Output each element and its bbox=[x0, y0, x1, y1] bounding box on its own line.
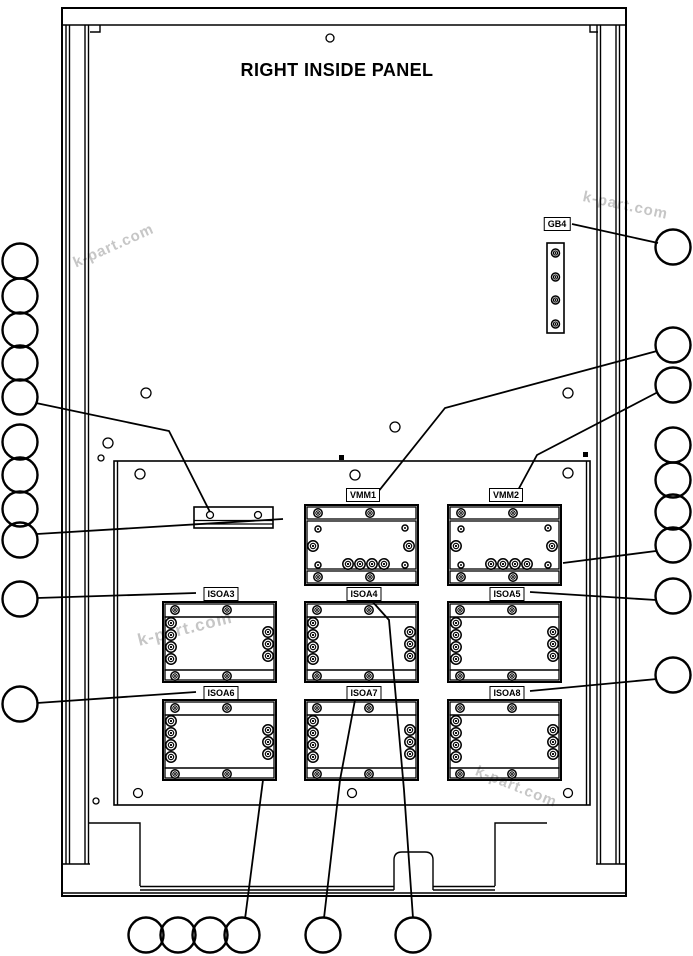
leader-line bbox=[37, 593, 196, 598]
screw-icon bbox=[404, 527, 406, 529]
module-vmm1 bbox=[305, 505, 418, 585]
screw-icon bbox=[368, 609, 370, 611]
component-label-vmm1: VMM1 bbox=[346, 488, 380, 502]
terminal-bar bbox=[194, 507, 273, 528]
module-section bbox=[450, 715, 559, 768]
module-isoa6 bbox=[163, 700, 276, 780]
leader-line bbox=[324, 700, 355, 918]
screw-icon bbox=[226, 773, 228, 775]
screw-icon bbox=[555, 252, 557, 254]
module-section bbox=[307, 507, 416, 519]
page-title: RIGHT INSIDE PANEL bbox=[241, 60, 434, 81]
mounting-hole bbox=[390, 422, 400, 432]
callout-balloon-right[interactable] bbox=[656, 368, 691, 403]
screw-icon bbox=[459, 609, 461, 611]
callout-balloon-right[interactable] bbox=[656, 463, 691, 498]
component-label-isoa5: ISOA5 bbox=[489, 587, 524, 601]
screw-icon bbox=[170, 634, 172, 636]
right-inside-panel-diagram: RIGHT INSIDE PANEL k-part.comk-part.comk… bbox=[0, 0, 693, 956]
module-isoa4 bbox=[305, 602, 418, 682]
screw-icon bbox=[409, 729, 411, 731]
screw-icon bbox=[383, 563, 385, 565]
screw-icon bbox=[555, 299, 557, 301]
gb4-terminal-strip bbox=[547, 243, 564, 333]
callout-balloon-bottom[interactable] bbox=[306, 918, 341, 953]
screw-icon bbox=[316, 707, 318, 709]
screw-icon bbox=[267, 643, 269, 645]
screw-icon bbox=[455, 646, 457, 648]
screw-icon bbox=[174, 773, 176, 775]
callout-balloon-bottom[interactable] bbox=[225, 918, 260, 953]
module-section bbox=[165, 604, 274, 617]
screw-icon bbox=[226, 609, 228, 611]
screw-icon bbox=[170, 720, 172, 722]
module-section bbox=[307, 604, 416, 617]
component-label-isoa3: ISOA3 bbox=[203, 587, 238, 601]
screw-icon bbox=[312, 720, 314, 722]
screw-icon bbox=[514, 563, 516, 565]
screw-icon bbox=[267, 753, 269, 755]
screw-icon bbox=[547, 527, 549, 529]
screw-icon bbox=[267, 741, 269, 743]
leader-line bbox=[378, 351, 657, 492]
module-section bbox=[307, 670, 416, 680]
callout-balloon-right[interactable] bbox=[656, 230, 691, 265]
screw-icon bbox=[460, 512, 462, 514]
screw-icon bbox=[551, 545, 553, 547]
module-section bbox=[450, 702, 559, 715]
screw-icon bbox=[409, 643, 411, 645]
screw-icon bbox=[502, 563, 504, 565]
screw-icon bbox=[555, 276, 557, 278]
callout-balloon-left[interactable] bbox=[3, 313, 38, 348]
leader-line bbox=[572, 224, 658, 243]
leader-line bbox=[530, 679, 657, 691]
screw-icon bbox=[460, 564, 462, 566]
screw-icon bbox=[312, 756, 314, 758]
screw-icon bbox=[455, 545, 457, 547]
screw-icon bbox=[459, 707, 461, 709]
callout-balloon-left[interactable] bbox=[3, 346, 38, 381]
screw-icon bbox=[267, 631, 269, 633]
component-label-isoa4: ISOA4 bbox=[346, 587, 381, 601]
screw-icon bbox=[511, 609, 513, 611]
callout-balloon-right[interactable] bbox=[656, 495, 691, 530]
screw-icon bbox=[312, 545, 314, 547]
component-label-vmm2: VMM2 bbox=[489, 488, 523, 502]
screw-icon bbox=[552, 741, 554, 743]
frame-step bbox=[495, 823, 547, 886]
screw-icon bbox=[371, 563, 373, 565]
callout-balloon-bottom[interactable] bbox=[161, 918, 196, 953]
screw-icon bbox=[512, 512, 514, 514]
screw-icon bbox=[226, 675, 228, 677]
module-section bbox=[307, 617, 416, 670]
tab-mark bbox=[583, 452, 588, 457]
tab-mark bbox=[339, 455, 344, 460]
screw-icon bbox=[312, 744, 314, 746]
screw-icon bbox=[316, 773, 318, 775]
callout-balloon-left[interactable] bbox=[3, 380, 38, 415]
module-outline bbox=[448, 505, 561, 585]
callout-balloon-bottom[interactable] bbox=[396, 918, 431, 953]
mounting-hole bbox=[103, 438, 113, 448]
screw-icon bbox=[312, 622, 314, 624]
screw-icon bbox=[312, 646, 314, 648]
screw-icon bbox=[455, 658, 457, 660]
screw-icon bbox=[455, 622, 457, 624]
module-isoa5 bbox=[448, 602, 561, 682]
frame-step bbox=[90, 25, 100, 32]
leader-line bbox=[517, 392, 658, 492]
module-section bbox=[450, 507, 559, 519]
callout-balloon-left[interactable] bbox=[3, 425, 38, 460]
module-section bbox=[165, 702, 274, 715]
screw-icon bbox=[317, 564, 319, 566]
leader-line bbox=[245, 780, 263, 919]
screw-icon bbox=[459, 675, 461, 677]
screw-icon bbox=[170, 744, 172, 746]
bottom-notch bbox=[394, 852, 433, 890]
screw-icon bbox=[267, 655, 269, 657]
callout-balloon-left[interactable] bbox=[3, 523, 38, 558]
screw-icon bbox=[455, 720, 457, 722]
screw-icon bbox=[409, 741, 411, 743]
screw-icon bbox=[511, 707, 513, 709]
callout-balloon-right[interactable] bbox=[656, 428, 691, 463]
module-section bbox=[165, 715, 274, 768]
component-label-isoa7: ISOA7 bbox=[346, 686, 381, 700]
panel-drawing bbox=[0, 0, 693, 956]
bar-hole bbox=[255, 512, 262, 519]
callout-balloon-left[interactable] bbox=[3, 582, 38, 617]
mounting-hole bbox=[326, 34, 334, 42]
screw-icon bbox=[460, 576, 462, 578]
screw-icon bbox=[347, 563, 349, 565]
screw-icon bbox=[170, 646, 172, 648]
screw-icon bbox=[490, 563, 492, 565]
callout-balloon-left[interactable] bbox=[3, 687, 38, 722]
module-vmm2 bbox=[448, 505, 561, 585]
module-section bbox=[307, 768, 416, 778]
screw-icon bbox=[317, 528, 319, 530]
screw-icon bbox=[526, 563, 528, 565]
mounting-hole bbox=[98, 455, 104, 461]
mounting-hole bbox=[141, 388, 151, 398]
screw-icon bbox=[455, 756, 457, 758]
module-isoa8 bbox=[448, 700, 561, 780]
screw-icon bbox=[368, 773, 370, 775]
callout-balloon-left[interactable] bbox=[3, 244, 38, 279]
screw-icon bbox=[174, 609, 176, 611]
module-section bbox=[450, 670, 559, 680]
callout-balloon-bottom[interactable] bbox=[193, 918, 228, 953]
screw-icon bbox=[316, 609, 318, 611]
screw-icon bbox=[174, 675, 176, 677]
callout-balloon-right[interactable] bbox=[656, 658, 691, 693]
bar-hole bbox=[207, 512, 214, 519]
screw-icon bbox=[170, 732, 172, 734]
screw-icon bbox=[170, 658, 172, 660]
screw-icon bbox=[409, 631, 411, 633]
screw-icon bbox=[317, 576, 319, 578]
screw-icon bbox=[312, 634, 314, 636]
leader-line bbox=[37, 692, 196, 703]
screw-icon bbox=[455, 634, 457, 636]
screw-icon bbox=[312, 732, 314, 734]
mounting-hole bbox=[563, 388, 573, 398]
screw-icon bbox=[512, 576, 514, 578]
screw-icon bbox=[409, 753, 411, 755]
module-section bbox=[450, 604, 559, 617]
screw-icon bbox=[170, 756, 172, 758]
mounting-hole bbox=[135, 469, 145, 479]
module-section bbox=[307, 702, 416, 715]
callout-balloon-left[interactable] bbox=[3, 279, 38, 314]
screw-icon bbox=[170, 622, 172, 624]
module-section bbox=[307, 571, 416, 583]
screw-icon bbox=[312, 658, 314, 660]
mounting-hole bbox=[93, 798, 99, 804]
module-outline bbox=[305, 505, 418, 585]
screw-icon bbox=[552, 655, 554, 657]
screw-icon bbox=[359, 563, 361, 565]
module-section bbox=[165, 768, 274, 778]
screw-icon bbox=[511, 675, 513, 677]
screw-icon bbox=[552, 643, 554, 645]
module-section bbox=[450, 571, 559, 583]
module-section bbox=[165, 617, 274, 670]
screw-icon bbox=[316, 675, 318, 677]
screw-icon bbox=[547, 564, 549, 566]
inner-panel bbox=[114, 461, 590, 805]
screw-icon bbox=[267, 729, 269, 731]
leader-line bbox=[563, 551, 656, 563]
screw-icon bbox=[552, 753, 554, 755]
callout-balloon-right[interactable] bbox=[656, 328, 691, 363]
module-isoa3 bbox=[163, 602, 276, 682]
screw-icon bbox=[511, 773, 513, 775]
module-section bbox=[450, 768, 559, 778]
screw-icon bbox=[455, 732, 457, 734]
component-label-isoa8: ISOA8 bbox=[489, 686, 524, 700]
component-label-isoa6: ISOA6 bbox=[203, 686, 238, 700]
leader-line bbox=[37, 519, 283, 534]
screw-icon bbox=[226, 707, 228, 709]
mounting-hole bbox=[563, 468, 573, 478]
screw-icon bbox=[552, 729, 554, 731]
module-section bbox=[165, 670, 274, 680]
screw-icon bbox=[404, 564, 406, 566]
mounting-hole bbox=[350, 470, 360, 480]
screw-icon bbox=[369, 576, 371, 578]
module-isoa7 bbox=[305, 700, 418, 780]
component-label-gb4: GB4 bbox=[544, 217, 571, 231]
screw-icon bbox=[408, 545, 410, 547]
screw-icon bbox=[409, 655, 411, 657]
callout-balloon-left[interactable] bbox=[3, 458, 38, 493]
mounting-hole bbox=[134, 789, 143, 798]
callout-balloon-right[interactable] bbox=[656, 528, 691, 563]
screw-icon bbox=[552, 631, 554, 633]
screw-icon bbox=[368, 675, 370, 677]
screw-icon bbox=[317, 512, 319, 514]
screw-icon bbox=[369, 512, 371, 514]
mounting-hole bbox=[564, 789, 573, 798]
leader-line bbox=[530, 592, 656, 600]
screw-icon bbox=[555, 323, 557, 325]
callout-balloon-bottom[interactable] bbox=[129, 918, 164, 953]
module-section bbox=[450, 617, 559, 670]
screw-icon bbox=[460, 528, 462, 530]
frame-step bbox=[88, 823, 140, 886]
mounting-hole bbox=[348, 789, 357, 798]
callout-balloon-right[interactable] bbox=[656, 579, 691, 614]
screw-icon bbox=[455, 744, 457, 746]
screw-icon bbox=[174, 707, 176, 709]
callout-balloon-left[interactable] bbox=[3, 492, 38, 527]
screw-icon bbox=[368, 707, 370, 709]
screw-icon bbox=[459, 773, 461, 775]
